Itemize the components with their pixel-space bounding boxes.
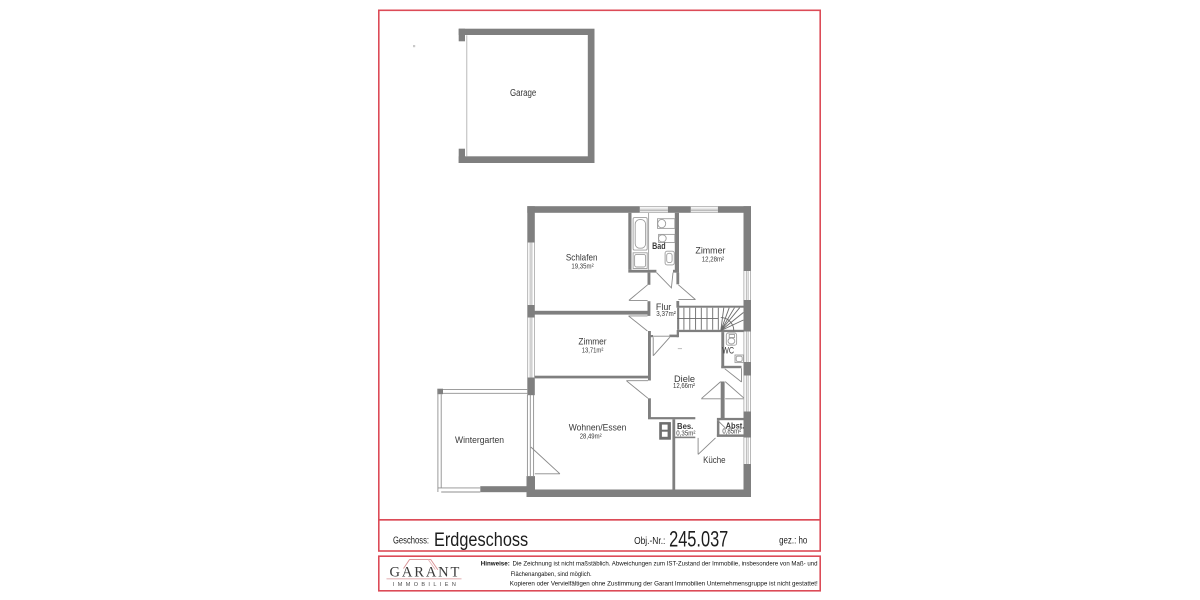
svg-text:Wintergarten: Wintergarten — [455, 435, 504, 446]
svg-text:Küche: Küche — [703, 455, 726, 466]
svg-text:12,66m²: 12,66m² — [673, 381, 695, 390]
svg-text:3,37m²: 3,37m² — [656, 309, 676, 318]
svg-text:Obj.-Nr.:: Obj.-Nr.: — [634, 535, 665, 547]
svg-text:gez.: ho: gez.: ho — [779, 535, 807, 547]
svg-text:WC: WC — [722, 346, 734, 357]
svg-text:Kopieren oder Vervielfältigen: Kopieren oder Vervielfältigen ohne Zusti… — [510, 580, 818, 587]
svg-text:Geschoss:: Geschoss: — [393, 535, 429, 547]
svg-text:Erdgeschoss: Erdgeschoss — [434, 529, 528, 551]
svg-text:0,35m²: 0,35m² — [676, 429, 696, 438]
svg-text:IMMOBILIEN: IMMOBILIEN — [393, 582, 459, 588]
svg-text:Die Zeichnung ist nicht maßstä: Die Zeichnung ist nicht maßstäblich. Abw… — [513, 560, 818, 567]
svg-text:Hinweise:: Hinweise: — [481, 560, 510, 567]
svg-text:Bad: Bad — [652, 241, 666, 252]
svg-text:12,28m²: 12,28m² — [702, 254, 725, 263]
svg-text:Flächenangaben, sind möglich.: Flächenangaben, sind möglich. — [511, 571, 592, 578]
svg-text:245.037: 245.037 — [669, 527, 728, 552]
svg-text:GARANT: GARANT — [390, 565, 462, 581]
svg-text:13,71m²: 13,71m² — [582, 346, 604, 355]
svg-text:0,85m²: 0,85m² — [722, 429, 741, 436]
svg-text:19,35m²: 19,35m² — [571, 262, 594, 271]
svg-text:28,49m²: 28,49m² — [580, 432, 602, 441]
svg-text:Garage: Garage — [510, 88, 537, 99]
